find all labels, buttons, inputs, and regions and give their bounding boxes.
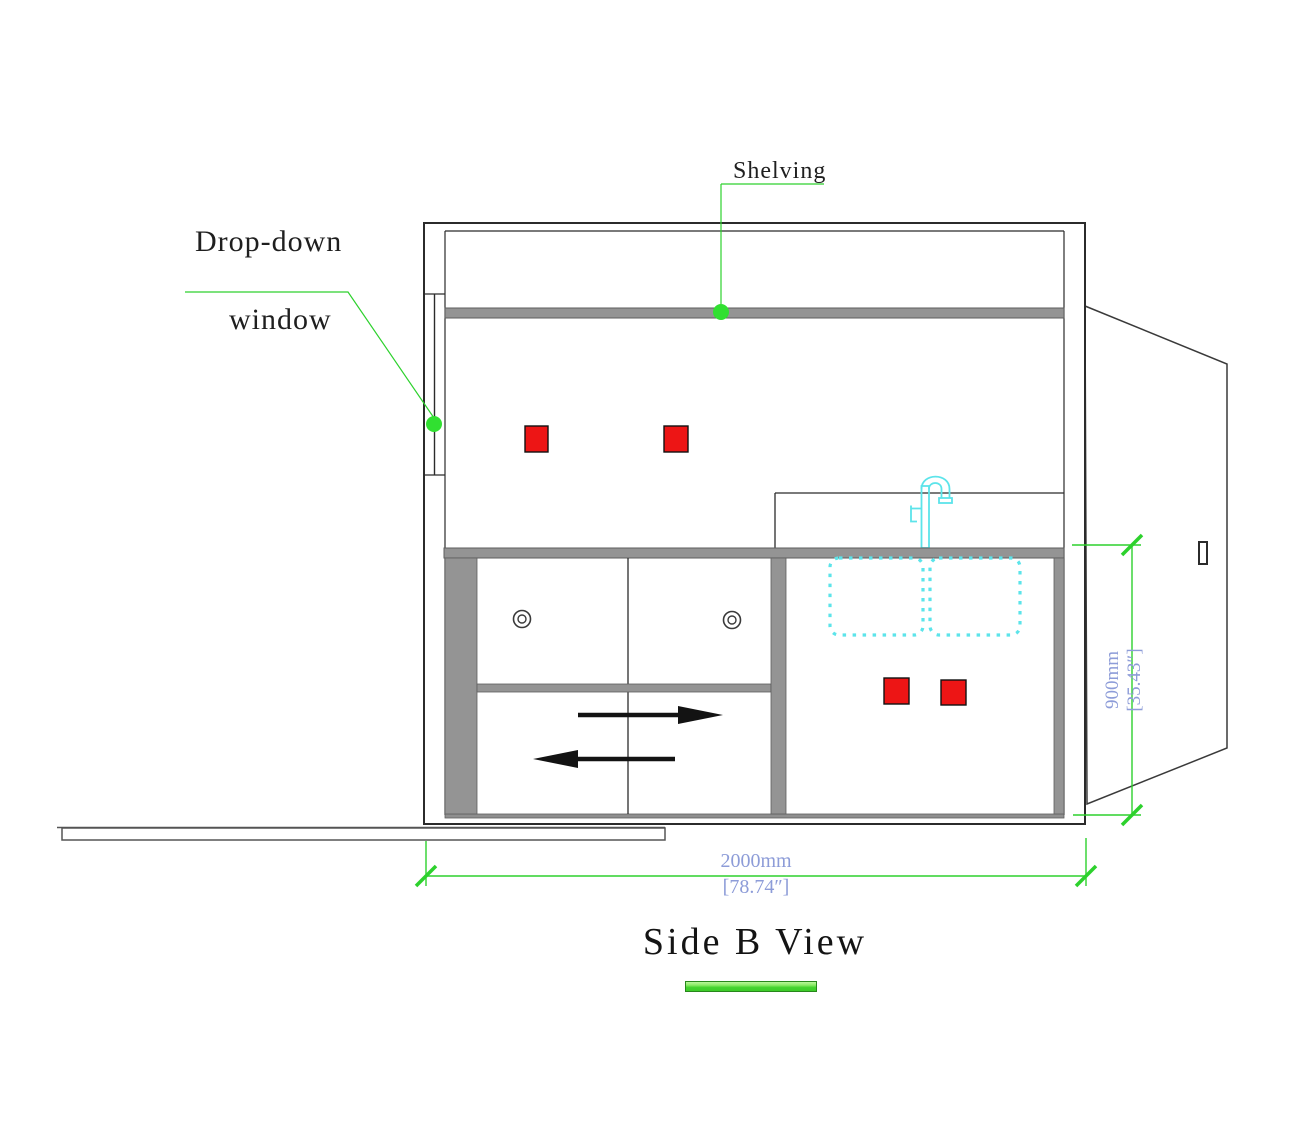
door-handle-icon (1199, 542, 1207, 564)
step-platform (57, 828, 665, 841)
outlet-marker-icon (941, 680, 966, 705)
outlet-marker-icon (664, 426, 688, 452)
drop-down-window-label-line1: Drop-down (195, 225, 342, 258)
height-dimension-imperial: [35.43″] (1124, 620, 1146, 740)
outlet-marker-icon (525, 426, 548, 452)
floor-line (445, 814, 1064, 818)
drop-down-window-label: Drop-down window (195, 222, 342, 378)
divider-pillar (771, 558, 786, 814)
drop-down-window-label-line2: window (229, 303, 332, 336)
height-dimension: 900mm [35.43″] (1102, 620, 1162, 740)
shelving-label: Shelving (733, 158, 826, 185)
title-underline-bar (685, 981, 817, 992)
right-pillar (1054, 558, 1064, 814)
platform-bar (62, 828, 665, 840)
width-dimension-imperial: [78.74″] (606, 876, 906, 899)
width-dimension-metric: 2000mm (606, 850, 906, 873)
left-pillar (445, 558, 477, 814)
cabinet-mid-shelf (477, 684, 771, 692)
outlet-marker-icon (884, 678, 909, 704)
shelf-board (445, 308, 1064, 318)
shelving-marker-dot (713, 304, 729, 320)
height-dimension-metric: 900mm (1102, 620, 1124, 740)
view-title: Side B View (555, 920, 955, 964)
window-marker-dot (426, 416, 442, 432)
side-b-view-drawing: Shelving Drop-down window 2000mm [78.74″… (0, 0, 1290, 1128)
